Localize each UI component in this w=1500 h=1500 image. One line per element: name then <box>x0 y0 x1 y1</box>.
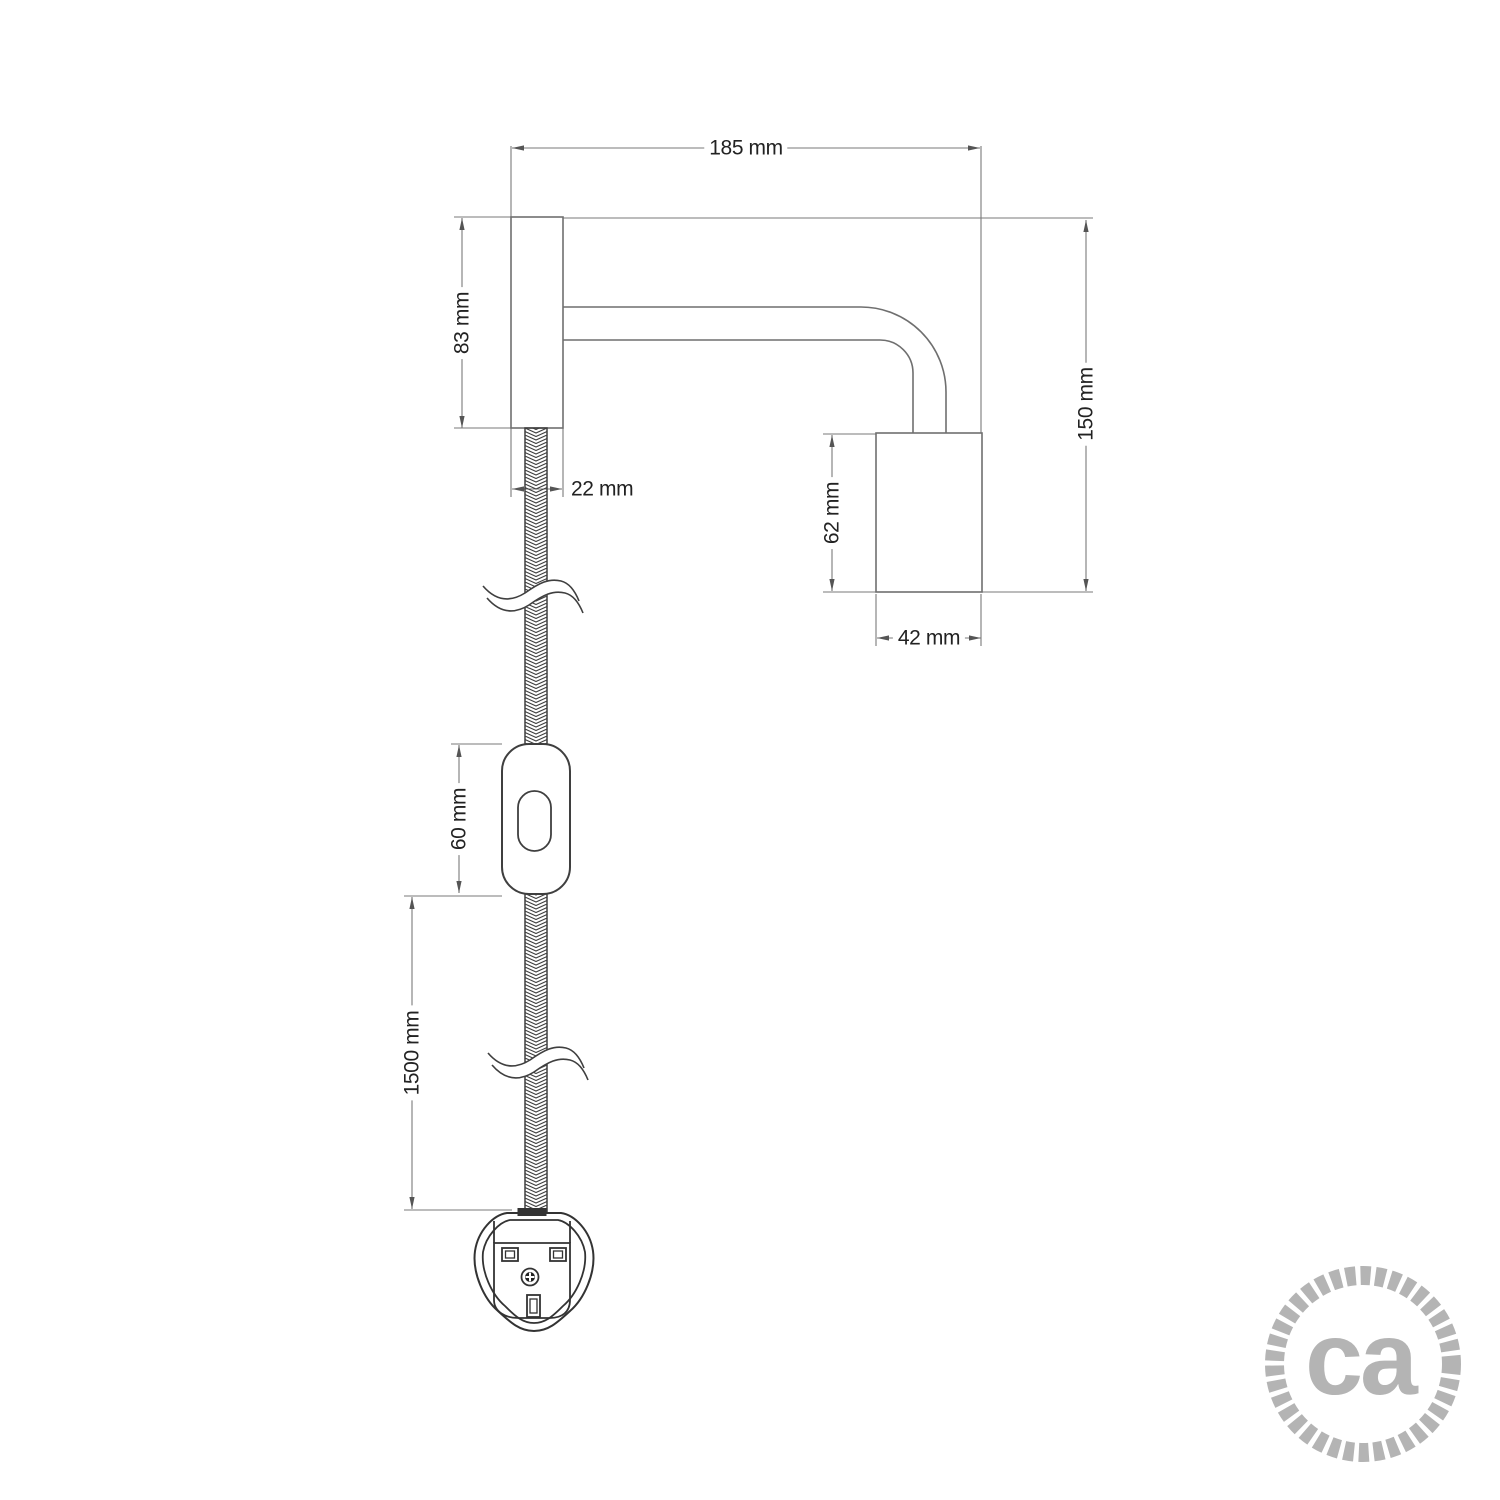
uk-plug <box>475 1208 594 1331</box>
wall-plate <box>511 217 563 428</box>
dimension-label-total-width: 185 mm <box>704 136 787 161</box>
brand-logo-text: ca <box>1305 1307 1415 1411</box>
lamp-socket <box>876 433 982 592</box>
dimension-label-socket-height: 62 mm <box>820 477 845 549</box>
dimension-label-socket-width: 42 mm <box>893 626 965 651</box>
dimension-label-total-height: 150 mm <box>1074 362 1099 445</box>
dimension-label-switch-length: 60 mm <box>447 783 472 855</box>
technical-drawing-canvas: 185 mm 83 mm 22 mm 150 mm 62 mm 42 mm 60… <box>0 0 1500 1500</box>
tube-outer-line <box>563 307 946 433</box>
dimension-lines <box>404 146 1093 1210</box>
tube-inner-line <box>563 340 913 433</box>
drawing-linework <box>0 0 1500 1500</box>
inline-switch <box>502 744 570 894</box>
switch-button <box>518 791 551 851</box>
dimension-label-mount-height: 83 mm <box>450 287 475 359</box>
dimension-label-mount-width: 22 mm <box>566 477 638 502</box>
plug-cable-grip <box>518 1208 547 1216</box>
dimension-label-cable-length: 1500 mm <box>400 1006 425 1101</box>
lamp-fixture-outline <box>511 217 982 592</box>
